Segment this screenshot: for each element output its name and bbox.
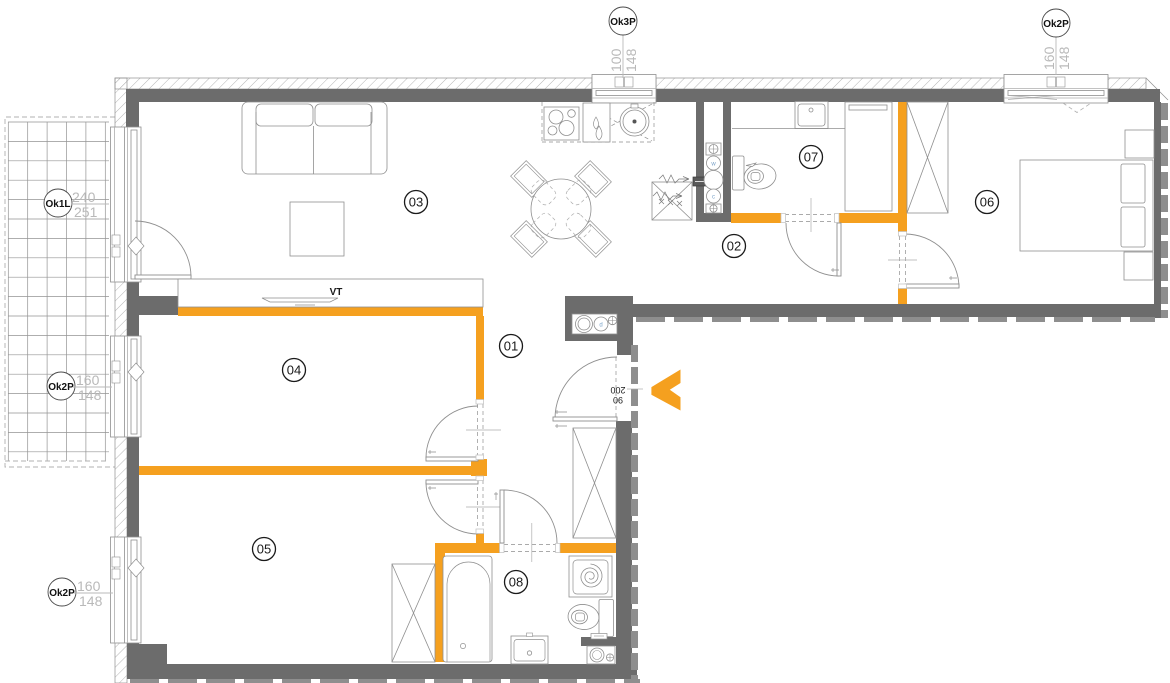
svg-text:c: c [712,195,715,201]
svg-text:148: 148 [1056,46,1072,70]
svg-text:200: 200 [610,385,625,395]
svg-text:148: 148 [623,48,639,72]
svg-text:Ok3P: Ok3P [610,17,636,28]
svg-text:08: 08 [509,575,523,590]
svg-text:01: 01 [504,339,518,354]
svg-text:160: 160 [76,372,100,388]
svg-text:148: 148 [78,387,102,403]
svg-text:Ok1L: Ok1L [45,199,70,210]
svg-text:d: d [599,323,602,329]
svg-text:05: 05 [257,542,271,557]
svg-text:240: 240 [72,189,96,205]
svg-text:04: 04 [287,363,301,378]
svg-text:Ok2P: Ok2P [48,382,74,393]
svg-text:03: 03 [409,195,423,210]
svg-text:07: 07 [804,150,818,165]
svg-text:160: 160 [1041,46,1057,70]
svg-text:251: 251 [74,204,98,220]
svg-text:w: w [710,162,716,168]
svg-text:148: 148 [79,593,103,609]
svg-text:02: 02 [727,239,741,254]
svg-text:06: 06 [980,195,994,210]
svg-text:Ok2P: Ok2P [49,588,75,599]
svg-text:VT: VT [330,287,343,298]
svg-text:90: 90 [613,395,623,405]
svg-text:Ok2P: Ok2P [1043,19,1069,30]
svg-text:100: 100 [608,48,624,72]
svg-text:160: 160 [77,578,101,594]
